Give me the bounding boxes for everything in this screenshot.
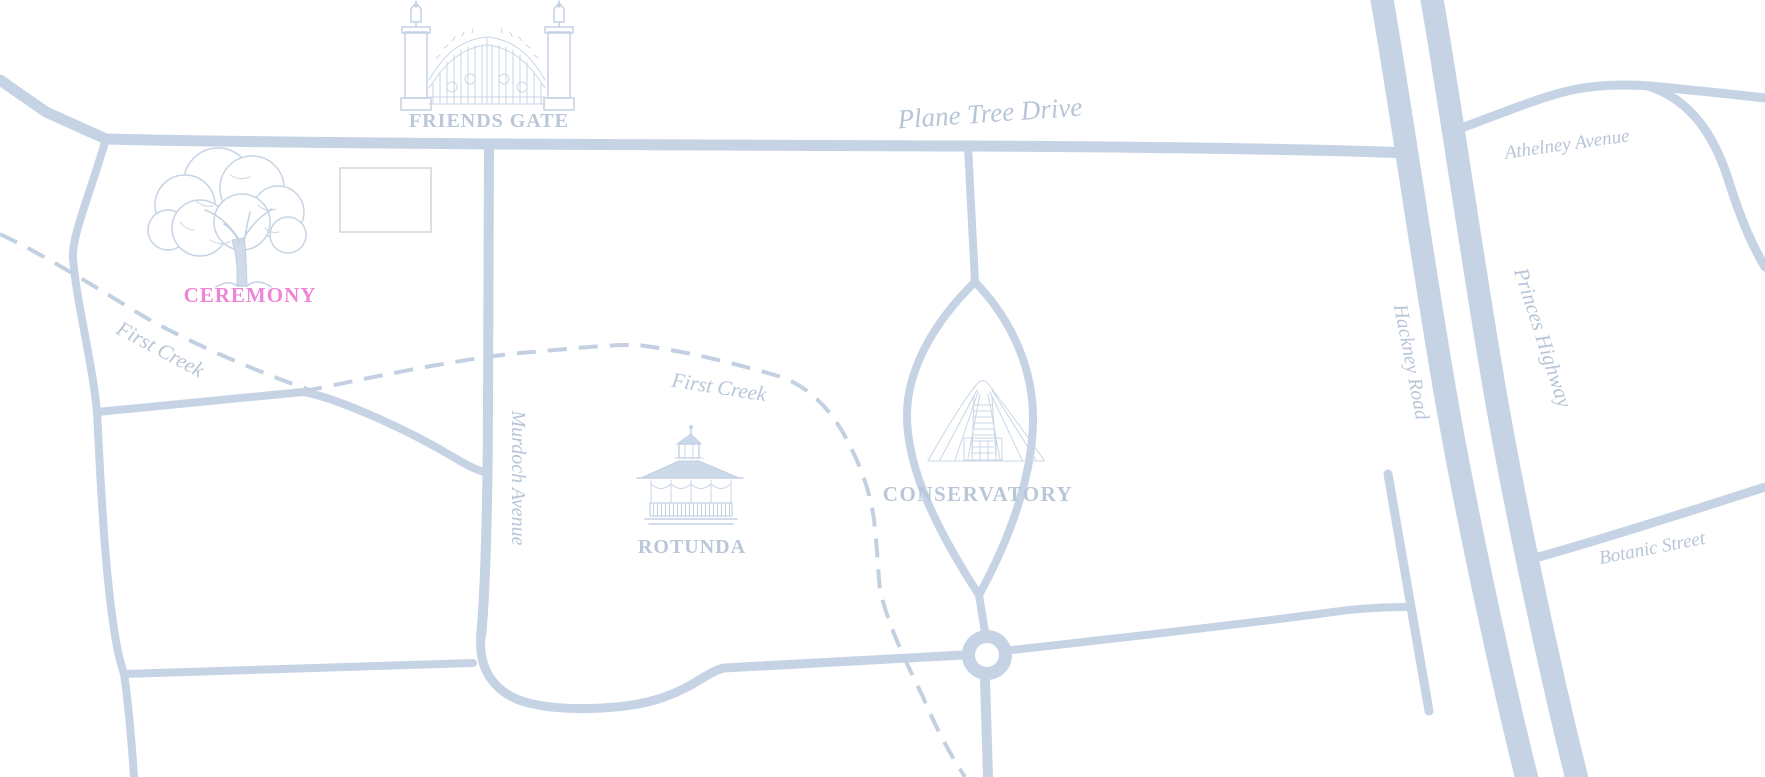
map-canvas: FRIENDS GATE Plane Tree Drive Athelney A…	[0, 0, 1765, 777]
ceremony-tree-illustration	[148, 148, 306, 287]
label-first-creek-upper: First Creek	[112, 316, 209, 383]
label-athelney-avenue: Athelney Avenue	[1501, 125, 1630, 164]
label-ceremony: CEREMONY	[184, 283, 317, 307]
label-first-creek-lower: First Creek	[669, 368, 769, 407]
rotunda-railing	[650, 503, 732, 516]
road-middle-connector	[97, 392, 488, 473]
road-network	[0, 0, 1765, 777]
road-south-loop	[481, 636, 963, 709]
gate-rails	[429, 37, 545, 104]
road-athelney-curve	[1648, 86, 1765, 267]
friends-gate-illustration	[401, 1, 574, 110]
conservatory-illustration	[928, 381, 1044, 461]
road-bottom-west	[124, 663, 473, 674]
road-plane-tree-drive	[0, 80, 1408, 153]
rotunda-illustration	[637, 426, 743, 524]
road-roundabout-south	[985, 680, 988, 777]
road-athelney-avenue	[1456, 85, 1765, 130]
road-murdoch-avenue	[481, 144, 489, 636]
road-conservatory-stem-north	[968, 146, 975, 282]
label-rotunda: ROTUNDA	[638, 536, 746, 558]
label-conservatory: CONSERVATORY	[883, 482, 1073, 506]
lantern-icon	[554, 1, 564, 27]
roundabout	[969, 637, 1006, 674]
road-roundabout-east	[1012, 607, 1408, 650]
garden-map: FRIENDS GATE Plane Tree Drive Athelney A…	[0, 0, 1765, 777]
road-conservatory-stem-south	[979, 595, 985, 632]
label-plane-tree-drive: Plane Tree Drive	[896, 92, 1084, 135]
lantern-icon	[411, 1, 421, 27]
road-service-strip	[1388, 474, 1429, 711]
road-west-boundary	[73, 139, 134, 777]
label-murdoch-avenue: Murdoch Avenue	[507, 410, 529, 546]
callout-box	[340, 168, 431, 232]
label-friends-gate: FRIENDS GATE	[409, 110, 569, 132]
label-princes-highway: Princes Highway	[1509, 264, 1577, 411]
